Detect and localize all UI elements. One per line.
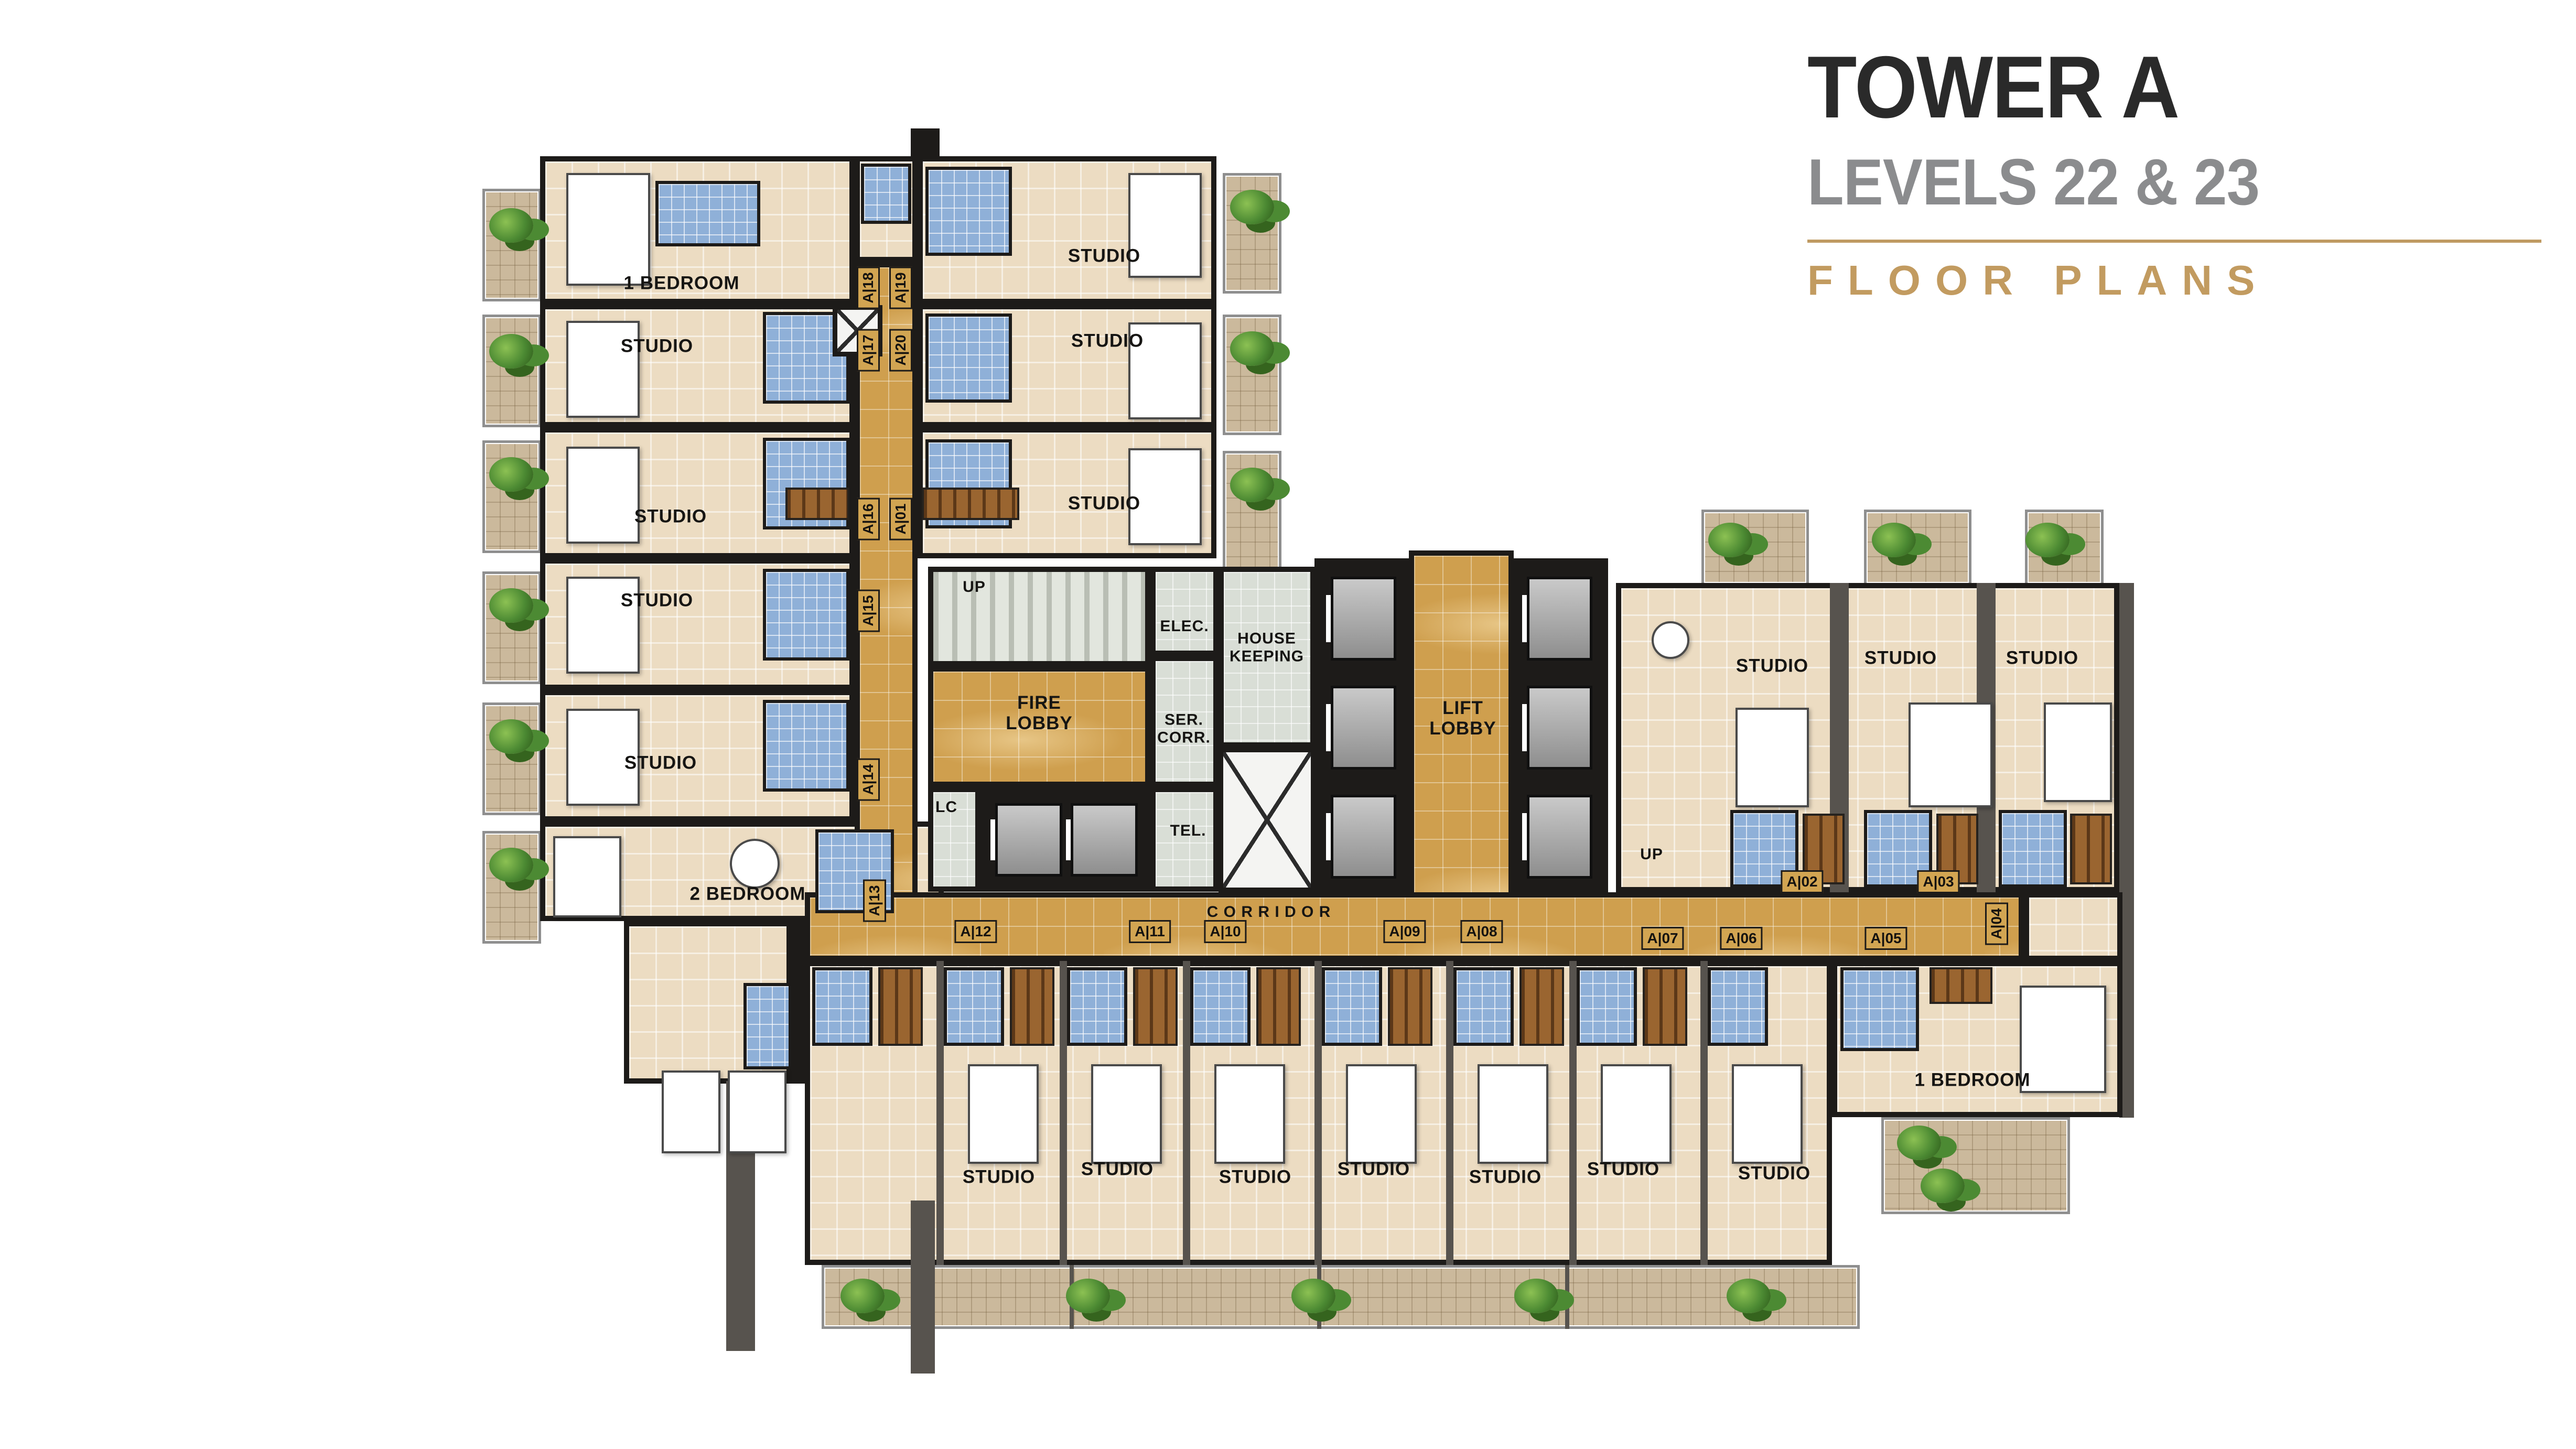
furniture-bed bbox=[2044, 702, 2112, 802]
fire-lift bbox=[1071, 803, 1138, 877]
plant-icon bbox=[1066, 1279, 1110, 1313]
section-label: FLOOR PLANS bbox=[1807, 256, 2545, 305]
label-studio: STUDIO bbox=[634, 506, 707, 526]
label-studio: STUDIO bbox=[621, 336, 693, 356]
label-lift-lobby: LIFT LOBBY bbox=[1429, 698, 1496, 739]
label-studio: STUDIO bbox=[1081, 1159, 1154, 1179]
unit-tag-a15: A|15 bbox=[857, 589, 880, 632]
label-studio: STUDIO bbox=[1338, 1159, 1410, 1179]
furniture-bed bbox=[1601, 1064, 1672, 1164]
lift bbox=[1527, 577, 1592, 661]
plant-icon bbox=[1872, 523, 1916, 557]
label-studio: STUDIO bbox=[2006, 647, 2078, 668]
label-studio: STUDIO bbox=[1736, 655, 1808, 676]
bathroom bbox=[1999, 810, 2067, 888]
wall bbox=[1700, 961, 1708, 1265]
bathroom bbox=[1453, 967, 1514, 1046]
balcony bbox=[482, 189, 541, 301]
furniture-bed bbox=[662, 1070, 720, 1153]
label-1-bedroom: 1 BEDROOM bbox=[624, 273, 740, 293]
plant-icon bbox=[1230, 190, 1274, 224]
unit-tag-a12: A|12 bbox=[954, 920, 997, 943]
floor-plan-page: TOWER A LEVELS 22 & 23 FLOOR PLANS bbox=[0, 0, 2576, 1449]
unit-tag-a18: A|18 bbox=[857, 266, 880, 309]
plant-icon bbox=[840, 1279, 885, 1313]
wall-stub bbox=[911, 128, 940, 160]
wardrobe bbox=[1010, 967, 1054, 1046]
wardrobe bbox=[922, 488, 1019, 520]
label-2-bedroom: 2 BEDROOM bbox=[690, 883, 806, 904]
lift bbox=[1331, 795, 1396, 879]
unit-tag-a10: A|10 bbox=[1204, 920, 1246, 943]
bathroom bbox=[655, 181, 760, 246]
bathroom bbox=[1322, 967, 1382, 1046]
label-up: UP bbox=[963, 578, 986, 596]
bathroom bbox=[1577, 967, 1637, 1046]
furniture-bed bbox=[728, 1070, 786, 1153]
plant-icon bbox=[1897, 1126, 1941, 1160]
bathroom bbox=[763, 569, 849, 661]
furniture-table bbox=[1652, 621, 1689, 659]
elec-room bbox=[1150, 567, 1219, 656]
label-ser-corr: SER. CORR. bbox=[1157, 711, 1211, 746]
plant-icon bbox=[1230, 331, 1274, 366]
bathroom bbox=[1708, 967, 1768, 1046]
unit-tag-a05: A|05 bbox=[1864, 927, 1907, 950]
plant-icon bbox=[489, 848, 533, 882]
plant-icon bbox=[489, 457, 533, 492]
wall bbox=[936, 961, 944, 1265]
wardrobe bbox=[1930, 967, 1992, 1004]
label-studio: STUDIO bbox=[1219, 1166, 1291, 1187]
unit-tag-a08: A|08 bbox=[1460, 920, 1503, 943]
bathroom bbox=[743, 983, 792, 1069]
unit-tag-a14: A|14 bbox=[857, 758, 880, 801]
furniture-bed bbox=[566, 173, 650, 286]
bathroom bbox=[1840, 967, 1919, 1051]
label-tel: TEL. bbox=[1170, 822, 1206, 840]
service-lift-shaft bbox=[1219, 748, 1316, 892]
gold-rule bbox=[1807, 240, 2541, 243]
balcony-strip bbox=[822, 1265, 1860, 1329]
wardrobe bbox=[1388, 967, 1432, 1046]
wall bbox=[1569, 961, 1577, 1265]
plant-icon bbox=[1727, 1279, 1771, 1313]
stairs-1 bbox=[928, 567, 1150, 666]
furniture-bed bbox=[1214, 1064, 1285, 1164]
unit-entry bbox=[2024, 892, 2122, 961]
lift bbox=[1527, 795, 1592, 879]
plant-icon bbox=[1230, 468, 1274, 502]
bathroom bbox=[812, 967, 872, 1046]
furniture-bed bbox=[1736, 708, 1809, 807]
unit-tag-a03: A|03 bbox=[1917, 870, 1959, 893]
bathroom bbox=[763, 700, 849, 792]
bathroom bbox=[861, 164, 911, 224]
unit-tag-a02: A|02 bbox=[1781, 870, 1823, 893]
unit-tag-a13: A|13 bbox=[863, 879, 886, 922]
wardrobe bbox=[2070, 814, 2112, 884]
fire-lift bbox=[995, 803, 1062, 877]
unit-tag-a20: A|20 bbox=[889, 329, 912, 371]
wardrobe bbox=[878, 967, 923, 1046]
wardrobe bbox=[1519, 967, 1564, 1046]
unit-tag-a04: A|04 bbox=[1985, 902, 2008, 945]
label-elec: ELEC. bbox=[1160, 618, 1209, 635]
plant-icon bbox=[1514, 1279, 1558, 1313]
furniture-bed bbox=[2020, 986, 2106, 1093]
furniture-bed bbox=[1732, 1064, 1803, 1164]
unit-tag-a09: A|09 bbox=[1383, 920, 1426, 943]
bathroom bbox=[1190, 967, 1251, 1046]
unit-tag-a17: A|17 bbox=[857, 329, 880, 371]
label-housekeeping: HOUSE KEEPING bbox=[1230, 630, 1304, 665]
page-subtitle: LEVELS 22 & 23 bbox=[1807, 145, 2486, 220]
label-lc: LC bbox=[935, 798, 957, 816]
title-block: TOWER A LEVELS 22 & 23 FLOOR PLANS bbox=[1807, 37, 2545, 305]
label-studio: STUDIO bbox=[1469, 1166, 1542, 1187]
plant-icon bbox=[489, 208, 533, 243]
furniture-bed bbox=[1346, 1064, 1417, 1164]
unit-tag-a16: A|16 bbox=[857, 498, 880, 540]
unit-tag-a11: A|11 bbox=[1129, 920, 1171, 943]
wall bbox=[1446, 961, 1453, 1265]
furniture-bed bbox=[566, 447, 640, 544]
label-1-bedroom: 1 BEDROOM bbox=[1915, 1069, 2031, 1090]
label-studio: STUDIO bbox=[963, 1166, 1035, 1187]
unit-tag-a06: A|06 bbox=[1720, 927, 1762, 950]
lift bbox=[1527, 686, 1592, 770]
unit-tag-a07: A|07 bbox=[1641, 927, 1684, 950]
label-studio: STUDIO bbox=[1864, 647, 1937, 668]
bathroom bbox=[944, 967, 1004, 1046]
unit-tag-a19: A|19 bbox=[889, 266, 912, 309]
plant-icon bbox=[489, 719, 533, 754]
wardrobe bbox=[1643, 967, 1687, 1046]
wardrobe bbox=[1133, 967, 1178, 1046]
label-studio: STUDIO bbox=[1738, 1163, 1810, 1183]
unit-tag-a01: A|01 bbox=[889, 498, 912, 540]
furniture-bed bbox=[1091, 1064, 1162, 1164]
label-studio: STUDIO bbox=[624, 752, 697, 773]
plant-icon bbox=[489, 588, 533, 623]
label-studio: STUDIO bbox=[621, 590, 693, 610]
furniture-bed bbox=[968, 1064, 1039, 1164]
furniture-bed bbox=[1909, 702, 1992, 807]
label-corridor: C O R R I D O R bbox=[1207, 903, 1331, 921]
plant-icon bbox=[1291, 1279, 1335, 1313]
furniture-dining-table bbox=[730, 839, 780, 889]
bathroom bbox=[1067, 967, 1127, 1046]
label-studio: STUDIO bbox=[1587, 1159, 1659, 1179]
lift bbox=[1331, 577, 1396, 661]
balcony bbox=[482, 315, 541, 427]
plant-icon bbox=[489, 334, 533, 369]
lift bbox=[1331, 686, 1396, 770]
label-studio: STUDIO bbox=[1071, 330, 1144, 351]
balcony-divider bbox=[1565, 1265, 1569, 1329]
furniture-bed bbox=[1478, 1064, 1548, 1164]
label-fire-lobby: FIRE LOBBY bbox=[1006, 693, 1073, 733]
wall bbox=[1183, 961, 1190, 1265]
label-up: UP bbox=[1640, 846, 1663, 863]
label-studio: STUDIO bbox=[1068, 245, 1140, 266]
wardrobe bbox=[1256, 967, 1301, 1046]
wall bbox=[1060, 961, 1067, 1265]
label-studio: STUDIO bbox=[1068, 493, 1140, 513]
wall-fin bbox=[911, 1201, 935, 1374]
furniture-bed bbox=[553, 836, 621, 917]
wall bbox=[1314, 961, 1322, 1265]
bathroom bbox=[925, 313, 1012, 403]
plant-icon bbox=[1708, 523, 1752, 557]
bathroom bbox=[925, 167, 1012, 256]
wardrobe bbox=[785, 488, 849, 520]
plant-icon bbox=[2025, 523, 2070, 557]
plant-icon bbox=[1921, 1169, 1965, 1203]
page-title: TOWER A bbox=[1807, 37, 2486, 138]
